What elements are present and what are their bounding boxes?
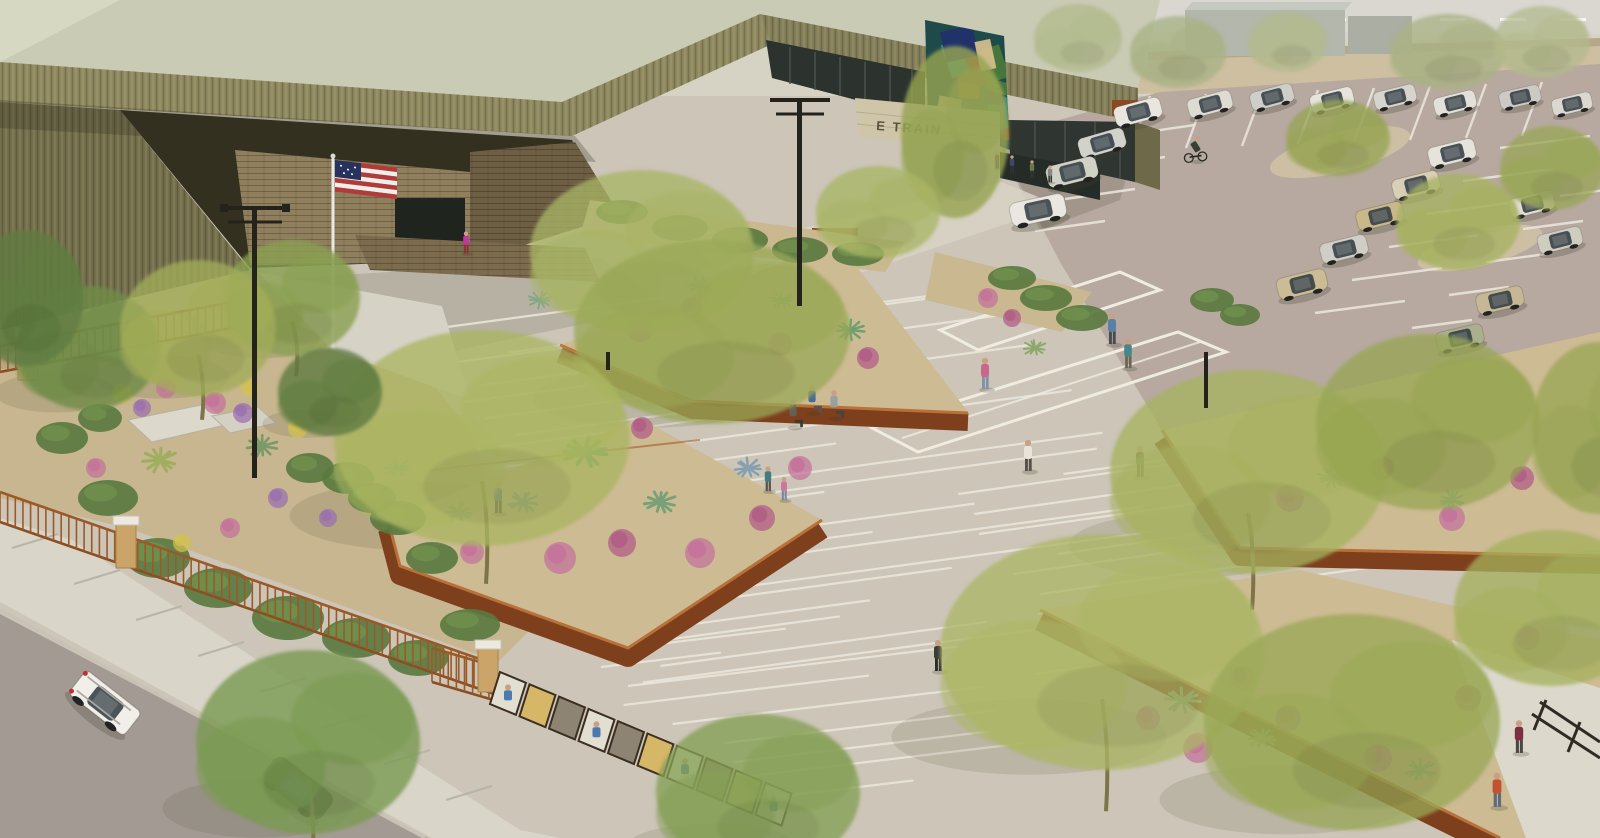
flower-clump	[608, 529, 636, 557]
paving-stripe	[628, 647, 957, 686]
shrub	[1220, 304, 1260, 326]
flower-clump	[685, 538, 715, 568]
photo-figure-head	[593, 721, 599, 727]
flower-clump	[319, 509, 337, 527]
tree	[1130, 16, 1226, 88]
shrub	[78, 480, 138, 516]
shrub	[988, 266, 1036, 290]
flower-clump	[749, 505, 775, 531]
rendering-stage: E TRAIN	[0, 0, 1600, 838]
tree	[1034, 4, 1122, 72]
flower-clump	[857, 347, 879, 369]
tree	[1390, 14, 1506, 90]
shrub	[1056, 305, 1108, 331]
agave-plant	[735, 458, 761, 477]
tree	[278, 348, 382, 436]
flower-clump	[978, 288, 998, 308]
photo-figure-shirt	[592, 727, 600, 737]
tree	[816, 166, 940, 258]
tree	[1316, 334, 1540, 510]
flower-clump	[86, 458, 106, 478]
tree	[1500, 126, 1600, 210]
shrub	[286, 453, 334, 483]
shrub	[406, 542, 458, 574]
rendering-canvas: E TRAIN	[0, 0, 1600, 838]
flower-clump	[220, 518, 240, 538]
flower-clump	[544, 542, 576, 574]
flower-clump	[133, 399, 151, 417]
warehouse-roof	[1185, 2, 1352, 10]
fence-pier	[113, 516, 139, 568]
shrub	[1020, 285, 1072, 311]
shrub	[440, 609, 500, 641]
tree	[1204, 614, 1500, 830]
tree	[1248, 12, 1328, 72]
tree	[1494, 6, 1590, 78]
agave-plant	[1024, 340, 1045, 355]
building-east-end	[1135, 122, 1160, 190]
display-panel-mesh	[549, 697, 585, 740]
flower-clump	[268, 488, 288, 508]
display-panel-photo	[579, 709, 615, 752]
tree	[656, 714, 860, 838]
flower-clump	[173, 534, 191, 552]
shrub	[36, 422, 88, 454]
shrub	[184, 568, 252, 608]
flagpole-finial	[331, 154, 336, 159]
photo-figure-head	[505, 684, 511, 690]
tree	[1286, 100, 1390, 176]
flower-clump	[1003, 309, 1021, 327]
display-panel-mesh	[608, 721, 644, 764]
flower-clump	[788, 456, 812, 480]
tree	[1396, 174, 1520, 270]
flower-clump	[233, 403, 253, 423]
photo-figure-shirt	[504, 690, 512, 700]
person	[979, 358, 995, 393]
flower-clump	[631, 417, 653, 439]
display-panel-amber	[520, 684, 556, 727]
